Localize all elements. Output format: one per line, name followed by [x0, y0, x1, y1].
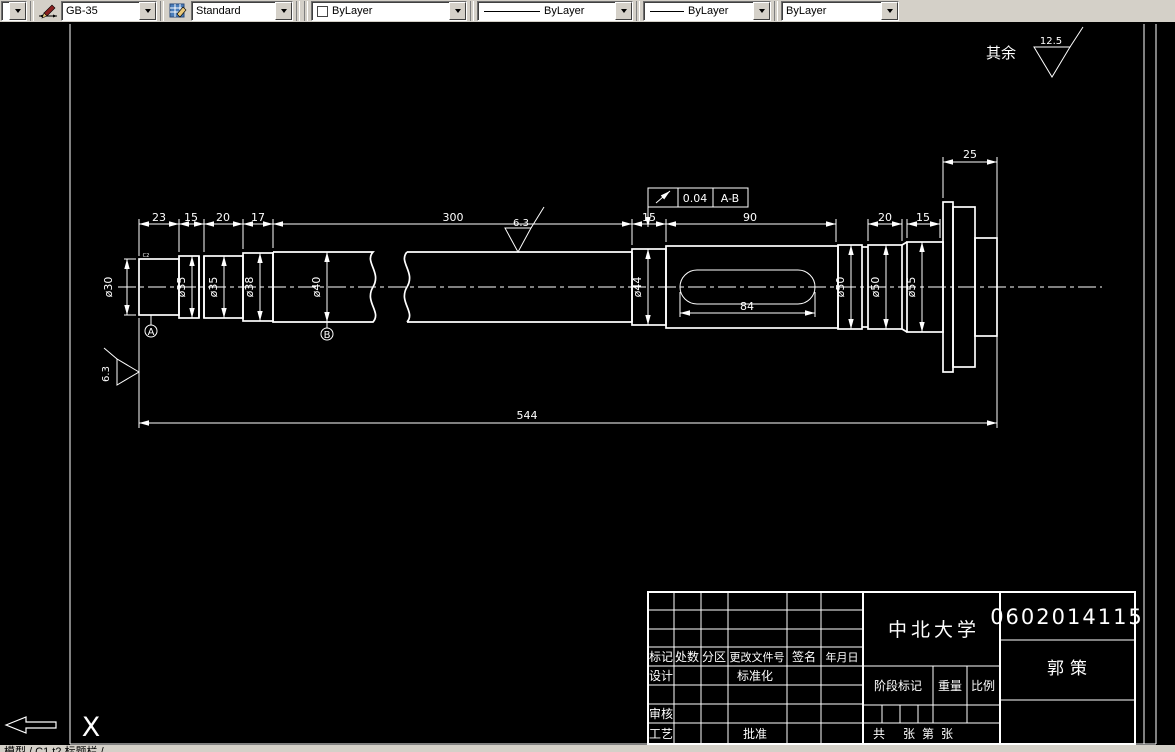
dia-d44: ø44 [631, 277, 644, 298]
styles-toolbar: GB-35 Standard ByLayer ByLayer [0, 0, 1175, 23]
title-block: 标记 处数 分区 更改文件号 签名 年月日 设计 标准化 审核 工艺 批准 中北… [648, 592, 1144, 744]
toolbar-separator [296, 1, 300, 21]
toolbar-separator [160, 1, 164, 21]
dia-d35b: ø35 [207, 277, 220, 298]
tolerance-frame: 0.04 A-B [648, 188, 748, 227]
dia-d55: ø55 [905, 277, 918, 298]
dim-keyway: 84 [740, 300, 754, 313]
chevron-down-icon[interactable] [753, 2, 770, 20]
dim-style-value: GB-35 [62, 5, 139, 17]
end-roughness: 6.3 [101, 366, 112, 382]
chevron-down-icon[interactable] [615, 2, 632, 20]
drawing-canvas[interactable]: 23 15 20 17 300 15 90 20 15 25 84 544 ø3… [0, 22, 1175, 745]
color-value: ByLayer [328, 5, 449, 17]
dimension-texts: 23 15 20 17 300 15 90 20 15 25 84 544 ø3… [102, 148, 977, 422]
tb-drawing-no: 0602014115 [990, 605, 1144, 629]
tb-process: 工艺 [649, 727, 673, 741]
ucs-x-label: X [82, 712, 101, 743]
tolerance-value: 0.04 [683, 192, 708, 205]
color-swatch [317, 6, 328, 17]
dia-d30: ø30 [102, 277, 115, 298]
dim-body: 300 [443, 211, 464, 224]
dia-d35a: ø35 [175, 277, 188, 298]
text-style-icon[interactable] [167, 1, 189, 21]
tb-total-lbl: 共 [873, 727, 885, 741]
ucs-icon: X [6, 712, 100, 743]
dim-seg2: 15 [184, 211, 198, 224]
toolbar-separator [470, 1, 474, 21]
dia-d50a: ø50 [834, 277, 847, 298]
tb-signature: 签名 [792, 649, 816, 664]
chevron-down-icon[interactable] [139, 2, 156, 20]
tb-weight: 重量 [938, 679, 962, 693]
dia-d38: ø38 [243, 277, 256, 298]
tb-change-doc: 更改文件号 [730, 650, 785, 664]
dim-seg4: 17 [251, 211, 265, 224]
truncated-select[interactable] [1, 1, 27, 21]
tb-zone: 分区 [702, 650, 726, 664]
tb-stage-mark: 阶段标记 [874, 678, 922, 693]
sheet-frame [70, 24, 1156, 744]
linetype-sample [484, 11, 540, 12]
tiny-note: C2 [143, 253, 150, 259]
tb-mark: 标记 [649, 650, 673, 664]
dia-d50b: ø50 [869, 277, 882, 298]
dim-seg3: 20 [216, 211, 230, 224]
datum-a-label: A [148, 327, 155, 338]
tb-sheet2: 张 [941, 727, 953, 741]
dim-relief: 15 [642, 211, 656, 224]
tolerance-datum: A-B [721, 192, 739, 205]
tb-check: 审核 [649, 706, 673, 721]
text-style-select[interactable]: Standard [191, 1, 293, 21]
chevron-down-icon[interactable] [275, 2, 292, 20]
datum-b-label: B [324, 330, 331, 341]
dim-d50b: 20 [878, 211, 892, 224]
linetype-select[interactable]: ByLayer [477, 1, 633, 21]
layout-tab-bar[interactable]: 模型 / C1 t2 标题栏 / [0, 745, 1175, 752]
lineweight-select[interactable]: ByLayer [643, 1, 771, 21]
chevron-down-icon[interactable] [449, 2, 466, 20]
tb-university: 中北大学 [888, 619, 980, 641]
dim-style-icon[interactable] [37, 1, 59, 21]
color-select[interactable]: ByLayer [311, 1, 467, 21]
general-roughness-label: 其余 [986, 44, 1016, 62]
plot-style-select[interactable]: ByLayer [781, 1, 899, 21]
tb-sheet1: 张 [903, 727, 915, 741]
dia-d40: ø40 [310, 277, 323, 298]
tb-author: 郭策 [1047, 659, 1093, 678]
linetype-value: ByLayer [540, 5, 615, 17]
chevron-down-icon[interactable] [881, 2, 898, 20]
text-style-value: Standard [192, 5, 275, 17]
toolbar-separator [636, 1, 640, 21]
plot-style-value: ByLayer [782, 5, 881, 17]
toolbar-separator [774, 1, 778, 21]
lineweight-sample [650, 11, 684, 12]
body-roughness: 6.3 [513, 218, 529, 229]
datum-symbols: A B [145, 315, 333, 341]
layout-tabs-text[interactable]: 模型 / C1 t2 标题栏 / [4, 746, 1175, 752]
dim-seg1: 23 [152, 211, 166, 224]
lineweight-value: ByLayer [684, 5, 753, 17]
toolbar-separator [30, 1, 34, 21]
dim-key-section: 90 [743, 211, 757, 224]
dim-flange: 25 [963, 148, 977, 161]
tb-standardize: 标准化 [737, 669, 773, 683]
chevron-down-icon[interactable] [9, 2, 26, 20]
tb-approve: 批准 [743, 726, 767, 741]
tb-no-lbl: 第 [922, 727, 934, 741]
dim-style-select[interactable]: GB-35 [61, 1, 157, 21]
tb-scale: 比例 [971, 679, 995, 693]
dimension-lines [127, 162, 997, 423]
application-window: GB-35 Standard ByLayer ByLayer [0, 0, 1175, 752]
general-roughness: 12.5 [1040, 36, 1062, 47]
tb-count: 处数 [675, 649, 699, 664]
toolbar-separator [304, 1, 308, 21]
runout-symbol-icon [656, 191, 670, 203]
dim-d55: 15 [916, 211, 930, 224]
dim-total: 544 [517, 409, 538, 422]
tb-date: 年月日 [826, 650, 859, 664]
tb-design: 设计 [649, 669, 673, 683]
